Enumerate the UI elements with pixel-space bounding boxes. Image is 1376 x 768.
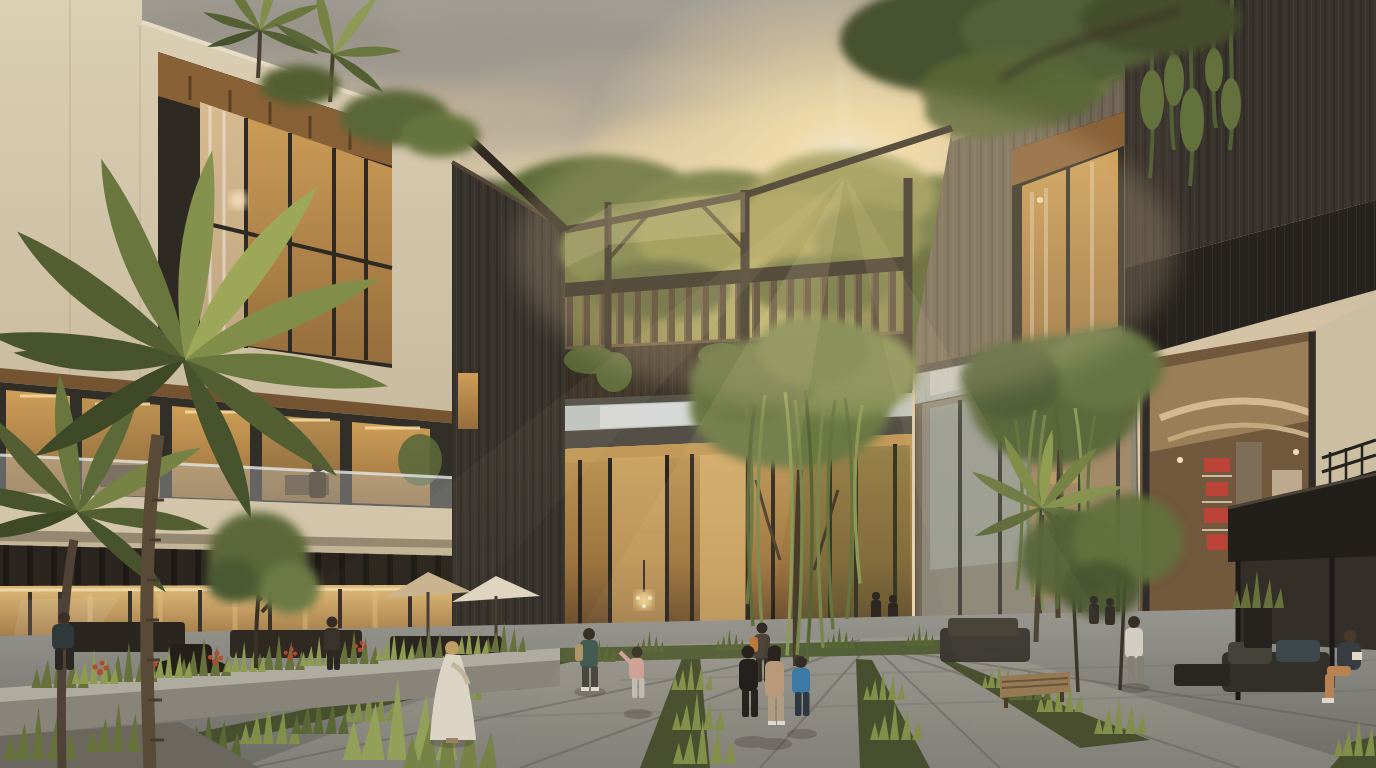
vignette (0, 0, 1376, 768)
rendered-image (0, 0, 1376, 768)
